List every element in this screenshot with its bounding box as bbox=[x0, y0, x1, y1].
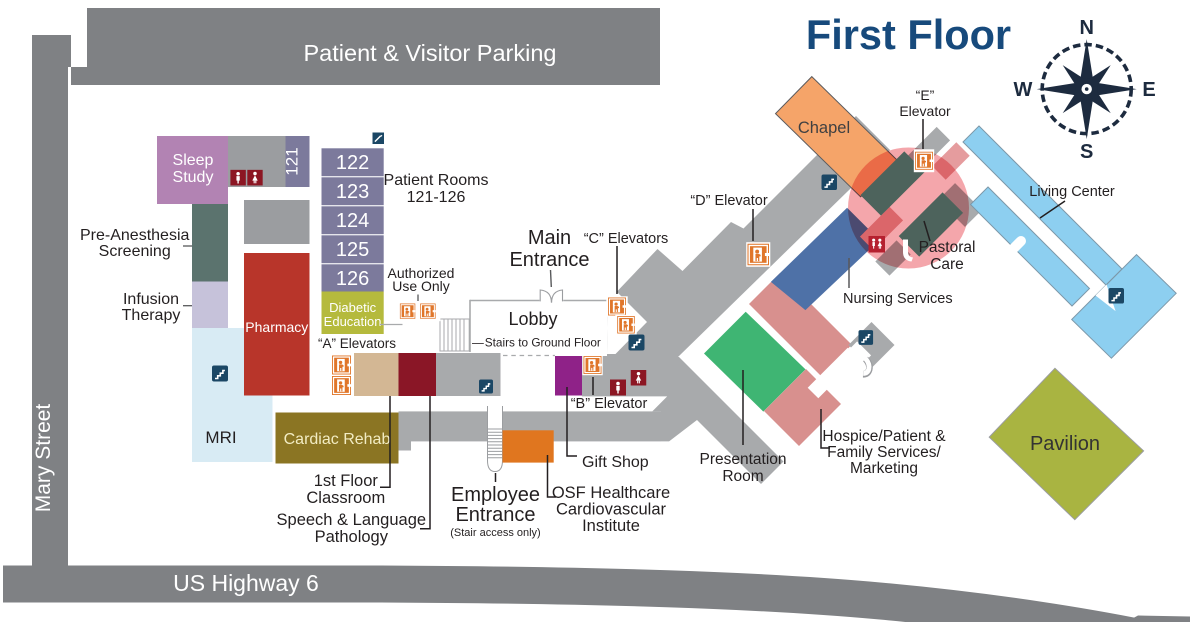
svg-text:Study: Study bbox=[173, 169, 214, 186]
svg-text:Speech & Language: Speech & Language bbox=[277, 511, 427, 529]
svg-text:S: S bbox=[1080, 141, 1093, 163]
svg-text:Marketing: Marketing bbox=[850, 460, 918, 477]
svg-text:Pathology: Pathology bbox=[315, 528, 389, 546]
svg-text:Main: Main bbox=[528, 227, 571, 249]
svg-text:Hospice/Patient &: Hospice/Patient & bbox=[822, 428, 946, 445]
svg-text:Lobby: Lobby bbox=[508, 309, 557, 329]
svg-text:“D” Elevator: “D” Elevator bbox=[690, 193, 768, 209]
svg-text:Cardiac Rehab: Cardiac Rehab bbox=[284, 431, 391, 448]
svg-text:“B” Elevator: “B” Elevator bbox=[571, 396, 648, 412]
svg-text:First Floor: First Floor bbox=[806, 11, 1011, 58]
svg-text:Patient & Visitor Parking: Patient & Visitor Parking bbox=[304, 40, 557, 66]
svg-text:Pharmacy: Pharmacy bbox=[245, 319, 308, 335]
svg-text:Elevator: Elevator bbox=[899, 103, 951, 119]
svg-text:Pre-Anesthesia: Pre-Anesthesia bbox=[80, 227, 189, 244]
svg-text:US Highway 6: US Highway 6 bbox=[173, 570, 319, 596]
svg-text:(Stair access only): (Stair access only) bbox=[450, 527, 540, 539]
svg-text:Education: Education bbox=[324, 314, 382, 329]
svg-text:Employee: Employee bbox=[451, 484, 540, 506]
svg-text:“E”: “E” bbox=[916, 87, 935, 103]
svg-text:“A” Elevators: “A” Elevators bbox=[318, 336, 396, 351]
svg-text:Care: Care bbox=[930, 256, 964, 273]
svg-text:Entrance: Entrance bbox=[509, 249, 589, 271]
svg-text:Infusion: Infusion bbox=[123, 291, 179, 308]
svg-text:121-126: 121-126 bbox=[407, 189, 466, 206]
svg-text:Room: Room bbox=[722, 468, 763, 485]
svg-text:Nursing Services: Nursing Services bbox=[843, 291, 953, 307]
svg-text:Use Only: Use Only bbox=[392, 278, 450, 294]
svg-text:“C” Elevators: “C” Elevators bbox=[584, 231, 669, 247]
svg-text:Sleep: Sleep bbox=[173, 152, 214, 169]
svg-text:Therapy: Therapy bbox=[122, 307, 181, 324]
svg-text:1st Floor: 1st Floor bbox=[314, 472, 379, 490]
svg-text:122: 122 bbox=[336, 152, 369, 174]
svg-text:Living Center: Living Center bbox=[1029, 184, 1115, 200]
svg-text:Patient Rooms: Patient Rooms bbox=[384, 172, 489, 189]
svg-text:Classroom: Classroom bbox=[306, 489, 385, 507]
svg-text:W: W bbox=[1014, 79, 1033, 101]
svg-text:Diabetic: Diabetic bbox=[329, 300, 376, 315]
svg-text:OSF Healthcare: OSF Healthcare bbox=[552, 484, 670, 502]
svg-text:Cardiovascular: Cardiovascular bbox=[556, 501, 667, 519]
svg-text:Screening: Screening bbox=[99, 243, 171, 260]
svg-text:E: E bbox=[1142, 79, 1155, 101]
svg-text:123: 123 bbox=[336, 181, 369, 203]
svg-text:Pavilion: Pavilion bbox=[1030, 433, 1100, 455]
svg-text:Chapel: Chapel bbox=[798, 119, 850, 137]
svg-text:121: 121 bbox=[283, 147, 302, 175]
svg-text:MRI: MRI bbox=[205, 428, 236, 447]
svg-text:Mary Street: Mary Street bbox=[32, 404, 55, 513]
svg-text:126: 126 bbox=[336, 268, 369, 290]
svg-text:125: 125 bbox=[336, 239, 369, 261]
svg-text:— Stairs to Ground Floor: — Stairs to Ground Floor bbox=[472, 336, 601, 350]
svg-text:Institute: Institute bbox=[582, 517, 640, 535]
svg-text:Gift Shop: Gift Shop bbox=[582, 454, 649, 471]
svg-text:Pastoral: Pastoral bbox=[919, 239, 976, 256]
svg-text:Presentation: Presentation bbox=[699, 451, 786, 468]
svg-text:124: 124 bbox=[336, 210, 369, 232]
svg-text:Entrance: Entrance bbox=[455, 504, 535, 526]
svg-text:N: N bbox=[1079, 17, 1093, 39]
svg-text:Family Services/: Family Services/ bbox=[827, 444, 941, 461]
